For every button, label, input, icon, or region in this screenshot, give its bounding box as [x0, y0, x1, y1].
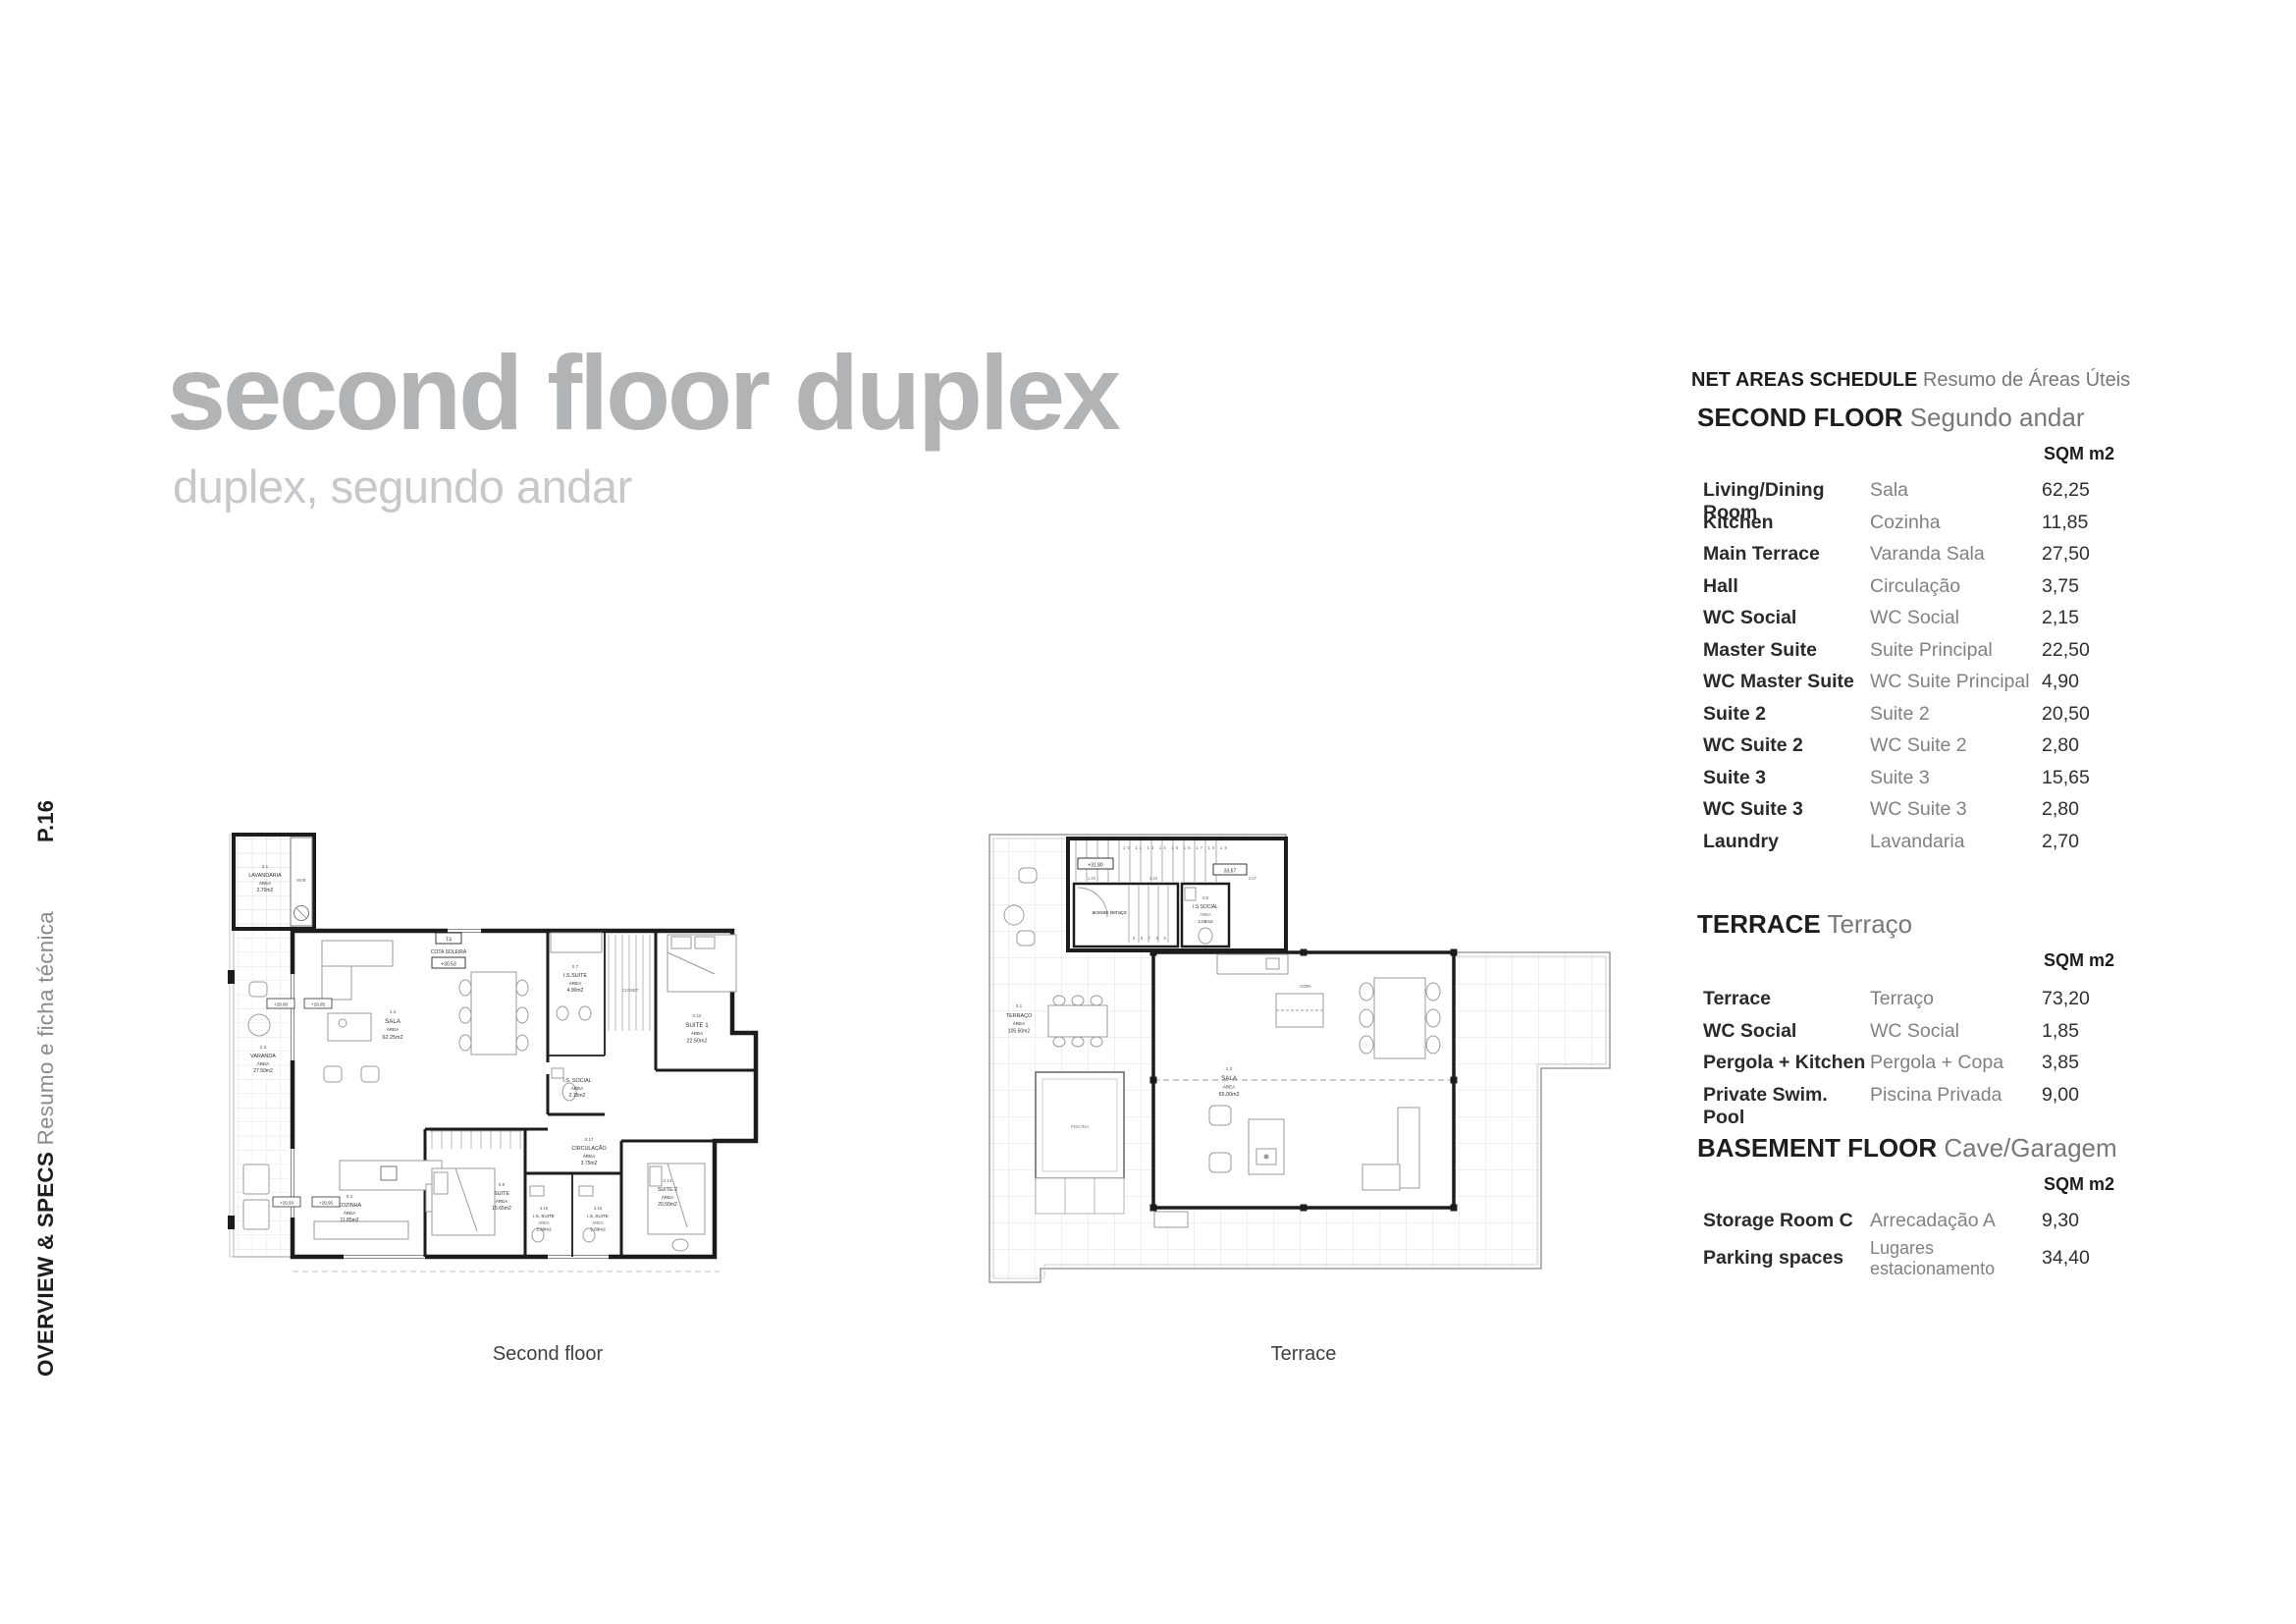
row-value-sqm: 11,85	[2042, 512, 2088, 534]
table-row: Suite 3 Suite 3 15,65	[1703, 767, 2135, 789]
svg-text:2.14: 2.14	[664, 1178, 672, 1183]
row-label-en: Kitchen	[1703, 512, 1870, 534]
svg-text:3.17: 3.17	[585, 1137, 594, 1142]
svg-text:I.S. SOCIAL: I.S. SOCIAL	[562, 1078, 591, 1084]
svg-text:15.65m2: 15.65m2	[492, 1206, 511, 1212]
row-value-sqm: 3,75	[2042, 575, 2079, 598]
svg-text:2.15m2: 2.15m2	[569, 1093, 586, 1099]
section-heading-en: TERRACE	[1697, 909, 1821, 939]
svg-text:ÁREA: ÁREA	[1200, 912, 1211, 917]
table-row: WC Master Suite WC Suite Principal 4,90	[1703, 671, 2135, 693]
table-row: Private Swim. Pool Piscina Privada 9,00	[1703, 1084, 2135, 1129]
svg-text:SUITE: SUITE	[494, 1191, 509, 1197]
svg-text:0.5: 0.5	[1202, 895, 1208, 900]
svg-text:+29.95: +29.95	[311, 1002, 326, 1007]
section-heading-en: BASEMENT FLOOR	[1697, 1133, 1937, 1163]
table-row: Laundry Lavandaria 2,70	[1703, 831, 2135, 853]
svg-text:2.67: 2.67	[1249, 876, 1257, 881]
svg-text:ÁREA: ÁREA	[496, 1198, 508, 1204]
svg-text:COPA: COPA	[1300, 984, 1311, 989]
svg-text:9 8 7 6 5: 9 8 7 6 5	[1133, 936, 1168, 941]
row-label-en: Parking spaces	[1703, 1247, 1870, 1279]
svg-text:ÁREA: ÁREA	[569, 980, 582, 986]
svg-text:+31.80: +31.80	[1088, 863, 1103, 869]
acesso-label: acesso terraço	[1092, 910, 1126, 916]
svg-text:33,67: 33,67	[1224, 869, 1237, 875]
svg-text:0.12: 0.12	[693, 1013, 702, 1018]
row-label-en: Pergola + Kitchen	[1703, 1052, 1870, 1074]
row-value-sqm: 22,50	[2042, 639, 2090, 662]
table-row: Parking spaces Lugares estacionamento 34…	[1703, 1247, 2135, 1279]
svg-text:ÁREA: ÁREA	[259, 880, 272, 886]
svg-text:SALA: SALA	[385, 1018, 401, 1025]
svg-text:0.4: 0.4	[347, 1194, 353, 1199]
section-heading-en: SECOND FLOOR	[1697, 403, 1902, 432]
section-terrace-heading: TERRACE Terraço	[1691, 909, 2135, 940]
svg-text:ÁREA: ÁREA	[583, 1153, 596, 1159]
second-floor-caption: Second floor	[440, 1343, 656, 1366]
section-heading-pt: Segundo andar	[1910, 403, 2085, 432]
stair-wc-block: 10 11 13 14 15 16 17 18 19 9 8 7 6 5 +31…	[1068, 839, 1286, 950]
row-label-en: Storage Room C	[1703, 1210, 1870, 1232]
svg-text:20.50m2: 20.50m2	[658, 1202, 677, 1208]
table-row: WC Social WC Social 1,85	[1703, 1020, 2135, 1043]
page-number: P.16	[33, 782, 59, 842]
row-label-pt: Cozinha	[1870, 512, 2042, 534]
brochure-page: { "sidebar": { "page_number": "P.16", "s…	[0, 0, 2296, 1624]
unit-label: SQM m2	[2044, 950, 2114, 971]
row-label-en: Suite 3	[1703, 767, 1870, 789]
row-value-sqm: 2,80	[2042, 734, 2079, 757]
svg-text:1.3: 1.3	[390, 1009, 397, 1014]
svg-text:2.3: 2.3	[260, 1045, 267, 1050]
svg-text:27.50m2: 27.50m2	[253, 1068, 273, 1074]
svg-text:ÁREA: ÁREA	[257, 1060, 270, 1066]
row-value-sqm: 34,40	[2042, 1247, 2090, 1279]
row-label-en: WC Suite 3	[1703, 798, 1870, 821]
row-label-pt: WC Suite 3	[1870, 798, 2042, 821]
svg-text:ÁREA: ÁREA	[1223, 1084, 1236, 1090]
net-areas-schedule: NET AREAS SCHEDULE Resumo de Áreas Úteis…	[1691, 369, 2135, 1302]
table-row: Storage Room C Arrecadação A 9,30	[1703, 1210, 2135, 1232]
terrace-caption: Terrace	[1196, 1343, 1412, 1366]
svg-text:2.70m2: 2.70m2	[257, 888, 274, 893]
svg-text:+29.93: +29.93	[280, 1201, 294, 1206]
svg-text:3.75m2: 3.75m2	[581, 1161, 598, 1166]
row-label-pt: Lugares estacionamento	[1870, 1238, 2042, 1279]
sidebar-section-title: OVERVIEW & SPECS Resumo e ficha técnica	[33, 954, 59, 1377]
row-label-pt: Suite 2	[1870, 703, 2042, 726]
row-label-pt: Suite 3	[1870, 767, 2042, 789]
row-label-en: Terrace	[1703, 988, 1870, 1010]
row-label-en: WC Master Suite	[1703, 671, 1870, 693]
svg-text:4.90m2: 4.90m2	[567, 988, 584, 994]
svg-text:COTA SOLEIRA: COTA SOLEIRA	[431, 949, 467, 955]
row-label-pt: Piscina Privada	[1870, 1084, 2042, 1129]
mur-label: MUR	[296, 878, 306, 883]
table-row: Master Suite Suite Principal 22,50	[1703, 639, 2135, 662]
svg-text:2.80m2: 2.80m2	[536, 1227, 552, 1232]
row-label-pt: Varanda Sala	[1870, 543, 2042, 566]
table-row: WC Suite 3 WC Suite 3 2,80	[1703, 798, 2135, 821]
row-label-en: Laundry	[1703, 831, 1870, 853]
piscina-label: PISCINA	[1071, 1124, 1090, 1129]
row-label-pt: Lavandaria	[1870, 831, 2042, 853]
svg-text:2.40: 2.40	[1149, 876, 1158, 881]
closet-label: CLOSET	[622, 988, 639, 993]
svg-text:ÁREA: ÁREA	[662, 1194, 674, 1200]
label-cota-soleira: T4 COTA SOLEIRA +30.53	[431, 933, 467, 968]
svg-text:3.1: 3.1	[1016, 1003, 1023, 1008]
schedule-title-en: NET AREAS SCHEDULE	[1691, 369, 1917, 391]
svg-text:3.15: 3.15	[594, 1206, 603, 1211]
row-label-pt: Arrecadação A	[1870, 1210, 2042, 1232]
row-label-en: Private Swim. Pool	[1703, 1084, 1870, 1129]
row-label-pt: Suite Principal	[1870, 639, 2042, 662]
row-label-en: Master Suite	[1703, 639, 1870, 662]
section-heading-pt: Terraço	[1827, 909, 1912, 939]
page-subtitle: duplex, segundo andar	[173, 461, 632, 513]
svg-text:3.1: 3.1	[262, 864, 269, 869]
svg-text:+29.93: +29.93	[274, 1002, 289, 1007]
svg-text:SALA: SALA	[1221, 1075, 1238, 1082]
row-label-en: WC Suite 2	[1703, 734, 1870, 757]
svg-text:1.20: 1.20	[1088, 876, 1096, 881]
row-value-sqm: 20,50	[2042, 703, 2090, 726]
row-value-sqm: 9,00	[2042, 1084, 2079, 1129]
row-label-en: Hall	[1703, 575, 1870, 598]
table-row: Kitchen Cozinha 11,85	[1703, 512, 2135, 534]
svg-text:0.9: 0.9	[499, 1182, 506, 1187]
row-label-pt: Terraço	[1870, 988, 2042, 1010]
svg-text:I.S. SUITE: I.S. SUITE	[533, 1214, 555, 1218]
svg-text:62.25m2: 62.25m2	[383, 1035, 403, 1041]
svg-text:+29.95: +29.95	[319, 1201, 334, 1206]
table-row: WC Suite 2 WC Suite 2 2,80	[1703, 734, 2135, 757]
svg-text:ÁREA: ÁREA	[1013, 1020, 1026, 1026]
svg-text:10 11 13 14 15 16 17 18 19: 10 11 13 14 15 16 17 18 19	[1123, 845, 1229, 850]
svg-text:T4: T4	[446, 938, 452, 944]
svg-text:VARANDA: VARANDA	[250, 1054, 276, 1059]
svg-text:1.3: 1.3	[1226, 1066, 1233, 1071]
row-value-sqm: 15,65	[2042, 767, 2090, 789]
svg-text:0.7: 0.7	[572, 964, 579, 969]
table-row: Pergola + Kitchen Pergola + Copa 3,85	[1703, 1052, 2135, 1074]
svg-text:SUITE 2: SUITE 2	[658, 1187, 677, 1193]
terrace-plan: 10 11 13 14 15 16 17 18 19 9 8 7 6 5 +31…	[982, 825, 1641, 1326]
sidebar-section-title-pt: Resumo e ficha técnica	[33, 911, 58, 1145]
svg-text:I.S. SUITE: I.S. SUITE	[587, 1214, 609, 1218]
row-value-sqm: 27,50	[2042, 543, 2090, 566]
svg-text:I.S.SUITE: I.S.SUITE	[563, 973, 587, 979]
row-label-pt: Circulação	[1870, 575, 2042, 598]
row-label-pt: WC Suite 2	[1870, 734, 2042, 757]
schedule-title: NET AREAS SCHEDULE Resumo de Áreas Úteis	[1691, 369, 2135, 392]
row-label-pt: WC Social	[1870, 607, 2042, 629]
row-label-en: Main Terrace	[1703, 543, 1870, 566]
row-value-sqm: 1,85	[2042, 1020, 2079, 1043]
row-label-pt: WC Suite Principal	[1870, 671, 2042, 693]
svg-text:2.80m2: 2.80m2	[590, 1227, 606, 1232]
section-heading-pt: Cave/Garagem	[1944, 1133, 2116, 1163]
svg-text:22.50m2: 22.50m2	[687, 1039, 708, 1045]
unit-label: SQM m2	[2044, 444, 2114, 464]
section-basement-heading: BASEMENT FLOOR Cave/Garagem	[1691, 1133, 2135, 1164]
schedule-title-pt: Resumo de Áreas Úteis	[1923, 369, 2130, 391]
row-value-sqm: 2,70	[2042, 831, 2079, 853]
copa-label: COPA	[1300, 984, 1311, 989]
svg-text:ÁREA: ÁREA	[571, 1085, 584, 1091]
svg-text:105.50m2: 105.50m2	[1008, 1029, 1030, 1035]
svg-text:3.16: 3.16	[540, 1206, 549, 1211]
row-label-en: WC Social	[1703, 607, 1870, 629]
row-label-en: Suite 2	[1703, 703, 1870, 726]
svg-text:I.S SOCIAL: I.S SOCIAL	[1193, 904, 1218, 910]
table-row: Hall Circulação 3,75	[1703, 575, 2135, 598]
row-label-en: WC Social	[1703, 1020, 1870, 1043]
svg-text:LAVANDARIA: LAVANDARIA	[248, 873, 282, 879]
sidebar-section-title-en: OVERVIEW & SPECS	[33, 1152, 58, 1377]
page-title: second floor duplex	[167, 340, 1118, 446]
svg-text:2.05m2: 2.05m2	[1198, 919, 1213, 924]
svg-text:CIRCULAÇÃO: CIRCULAÇÃO	[571, 1145, 606, 1152]
svg-text:ÁREA: ÁREA	[387, 1026, 400, 1032]
terrace-sala-room: COPA 1.3 SALA ÁREA 65,00m2	[1150, 949, 1458, 1228]
svg-text:65,00m2: 65,00m2	[1219, 1092, 1240, 1098]
row-label-pt: Pergola + Copa	[1870, 1052, 2042, 1074]
table-row: Suite 2 Suite 2 20,50	[1703, 703, 2135, 726]
row-value-sqm: 73,20	[2042, 988, 2090, 1010]
second-floor-plan: 3.1 LAVANDARIA ÁREA 2.70m2 MUR 2.3 VARAN…	[224, 825, 798, 1316]
row-value-sqm: 4,90	[2042, 671, 2079, 693]
row-label-pt: WC Social	[1870, 1020, 2042, 1043]
row-value-sqm: 2,15	[2042, 607, 2079, 629]
svg-text:COZINHA: COZINHA	[338, 1203, 362, 1209]
table-row: Terrace Terraço 73,20	[1703, 988, 2135, 1010]
svg-text:ÁREA: ÁREA	[592, 1220, 604, 1225]
svg-text:+30.53: +30.53	[441, 962, 456, 968]
section-second-floor-heading: SECOND FLOOR Segundo andar	[1691, 403, 2135, 433]
table-row: Main Terrace Varanda Sala 27,50	[1703, 543, 2135, 566]
row-value-sqm: 2,80	[2042, 798, 2079, 821]
table-row: WC Social WC Social 2,15	[1703, 607, 2135, 629]
svg-text:ÁREA: ÁREA	[691, 1030, 704, 1036]
svg-text:SUITE 1: SUITE 1	[685, 1022, 709, 1029]
svg-text:ÁREA: ÁREA	[344, 1210, 356, 1216]
svg-text:TERRAÇO: TERRAÇO	[1006, 1013, 1032, 1019]
unit-label: SQM m2	[2044, 1174, 2114, 1195]
row-value-sqm: 9,30	[2042, 1210, 2079, 1232]
svg-text:ÁREA: ÁREA	[538, 1220, 550, 1225]
row-value-sqm: 3,85	[2042, 1052, 2079, 1074]
svg-text:11.85m2: 11.85m2	[340, 1218, 358, 1223]
